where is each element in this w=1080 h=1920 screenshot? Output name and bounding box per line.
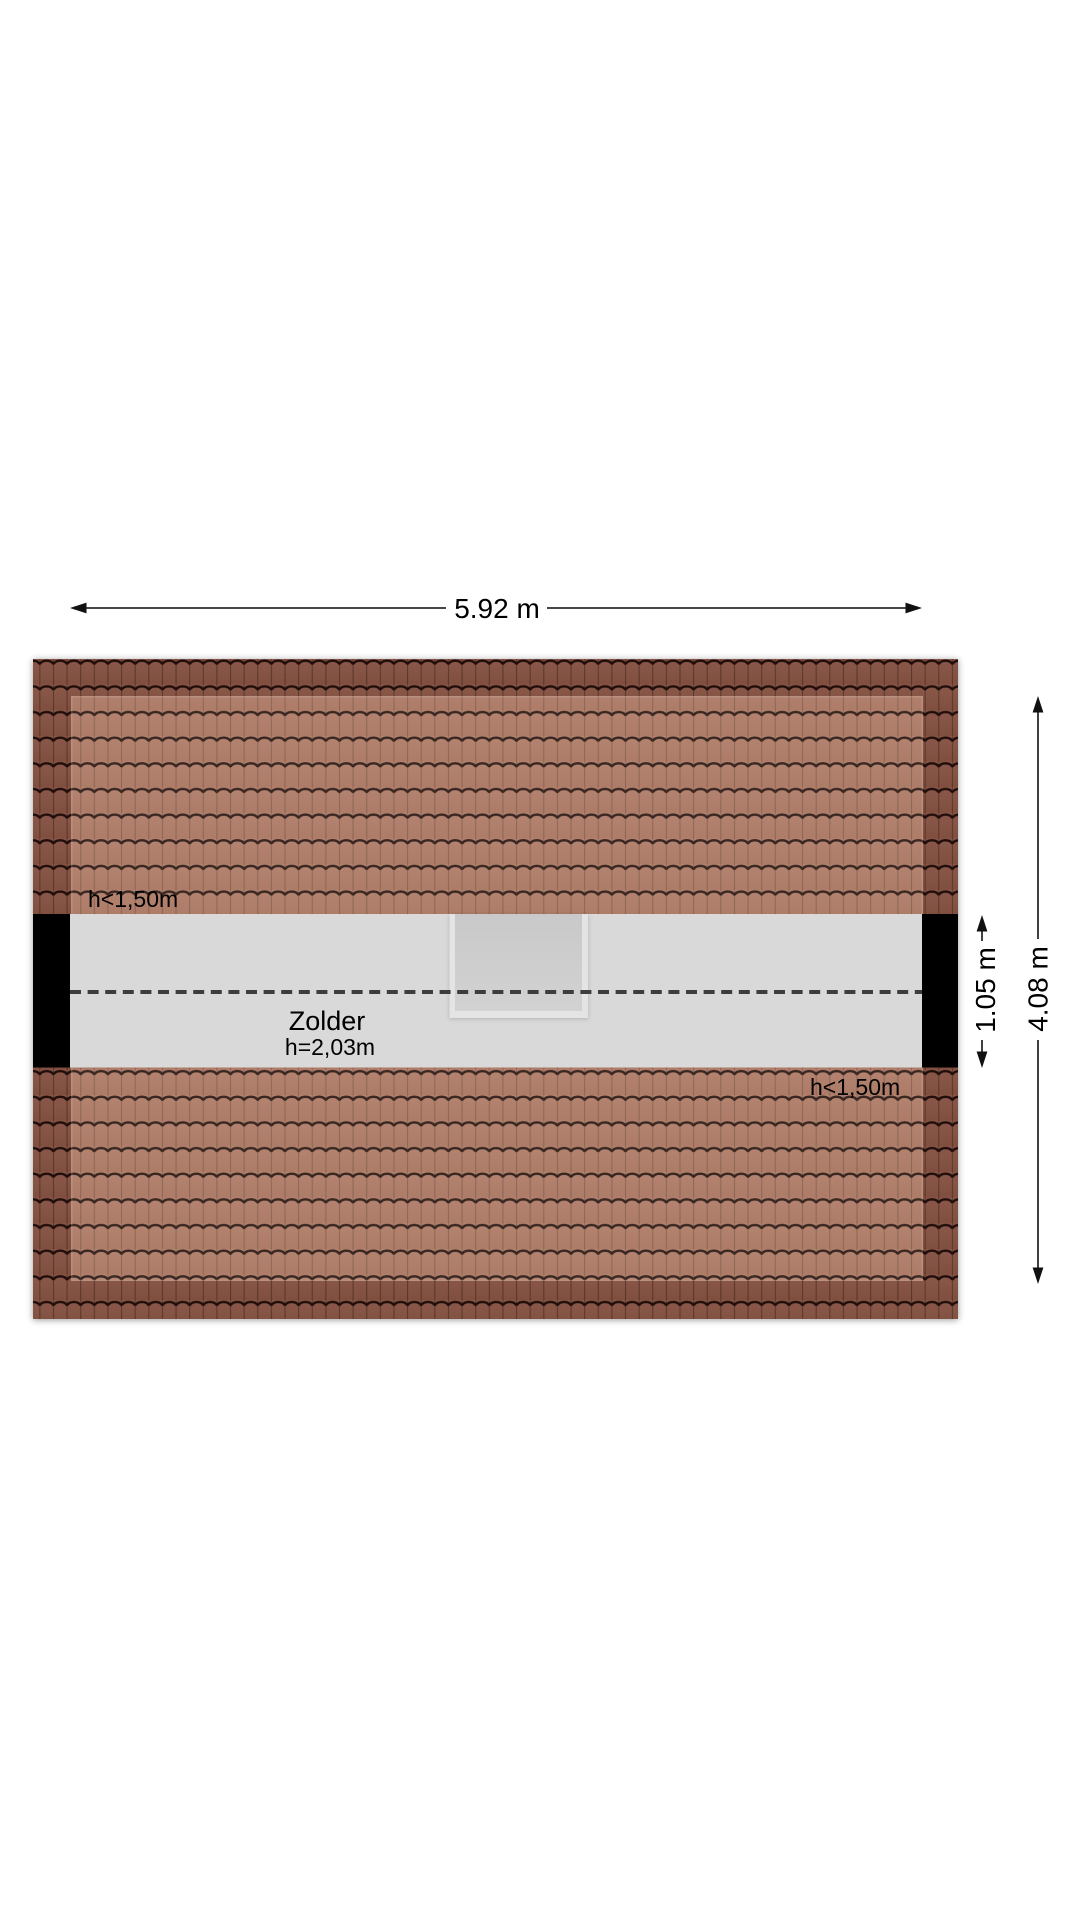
svg-text:h<1,50m: h<1,50m	[88, 886, 178, 912]
svg-text:5.92 m: 5.92 m	[454, 593, 540, 624]
svg-text:h<1,50m: h<1,50m	[810, 1074, 900, 1100]
svg-text:Zolder: Zolder	[289, 1006, 366, 1036]
svg-text:4.08 m: 4.08 m	[1023, 946, 1054, 1032]
svg-text:1.05 m: 1.05 m	[970, 947, 1001, 1033]
svg-text:h=2,03m: h=2,03m	[285, 1034, 375, 1060]
